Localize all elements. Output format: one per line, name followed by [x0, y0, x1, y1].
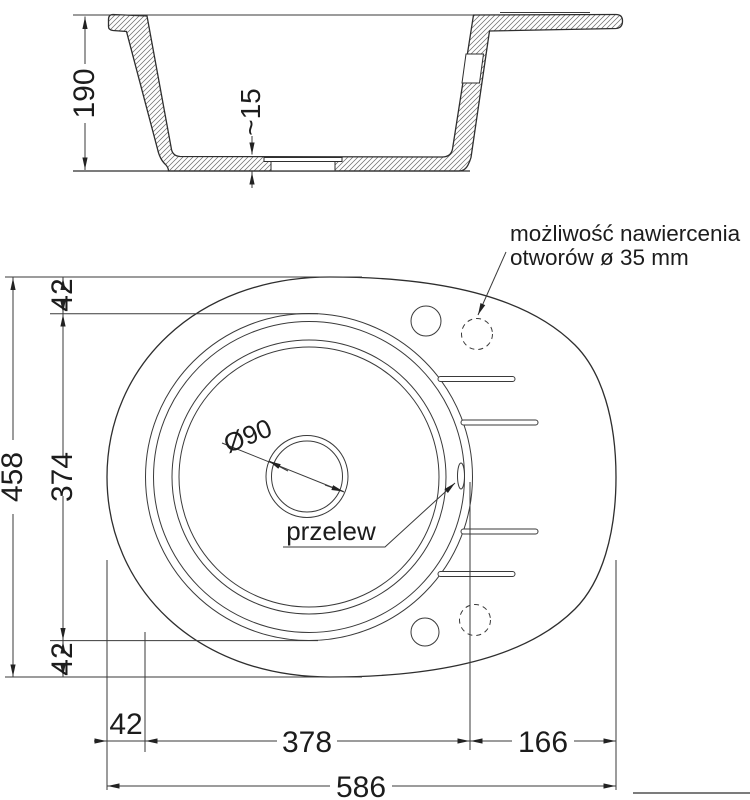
drainer-grooves	[438, 377, 538, 577]
dimension-overall-height: 458	[0, 277, 29, 677]
tap-hole-top	[411, 306, 441, 336]
dimension-chain-vertical: 42 374 42	[46, 277, 79, 677]
bowl-bottom-edge	[179, 347, 439, 607]
drainer-groove-1	[438, 377, 515, 382]
dimension-label-overall-height: 458	[0, 452, 29, 502]
bowl-inner-edge	[172, 340, 446, 614]
tap-hole-bottom	[411, 618, 439, 646]
drainer-groove-2	[461, 420, 538, 425]
dimension-label-drainer-width: 166	[518, 726, 568, 759]
sink-section-body	[109, 15, 623, 172]
dimension-label-depth: 190	[68, 68, 101, 118]
dimension-label-bottom-offset: 42	[46, 642, 79, 675]
dimension-label-top-offset: 42	[46, 278, 79, 311]
drill-note-leader	[478, 252, 506, 315]
dimension-chain-horizontal: 42 378 166	[94, 708, 616, 759]
bowl-outer-rim	[146, 314, 473, 641]
overflow-slot	[458, 463, 465, 489]
dimension-label-left-offset: 42	[109, 708, 142, 741]
drill-note: możliwość nawiercenia otworów ø 35 mm	[478, 221, 741, 315]
optional-hole-bottom	[460, 605, 491, 636]
drainer-groove-4	[438, 572, 515, 577]
dimension-label-bowl-height: 374	[46, 452, 79, 502]
dimension-label-bottom-thickness: ~15	[235, 88, 266, 136]
dimension-overall-width: 586	[107, 771, 616, 800]
dimension-label-drain-diameter: Ø90	[219, 413, 276, 459]
drain-outer-circle	[266, 436, 348, 518]
overflow-label: przelew	[283, 483, 455, 547]
drill-note-line2: otworów ø 35 mm	[510, 245, 689, 270]
optional-hole-top	[462, 319, 493, 350]
plan-view: możliwość nawiercenia otworów ø 35 mm Ø9…	[0, 221, 750, 800]
cross-section-view: 190 ~15	[68, 13, 623, 189]
overflow-passage-section	[462, 54, 484, 83]
technical-drawing-page: 190 ~15	[0, 0, 750, 800]
drill-note-line1: możliwość nawiercenia	[510, 221, 741, 246]
sink-outline	[107, 277, 616, 677]
overflow-label-text: przelew	[286, 516, 376, 546]
dimension-bottom-thickness: ~15	[235, 88, 266, 188]
drainer-groove-3	[461, 529, 538, 534]
dimension-label-bowl-width: 378	[282, 726, 332, 759]
bowl-rim-inner-line	[154, 322, 465, 633]
dimension-label-overall-width: 586	[336, 771, 386, 800]
drain-inner-circle	[272, 441, 343, 512]
sink-drawing-svg: 190 ~15	[0, 0, 750, 800]
dimension-depth: 190	[68, 17, 101, 171]
drain-recess-section	[264, 158, 342, 172]
